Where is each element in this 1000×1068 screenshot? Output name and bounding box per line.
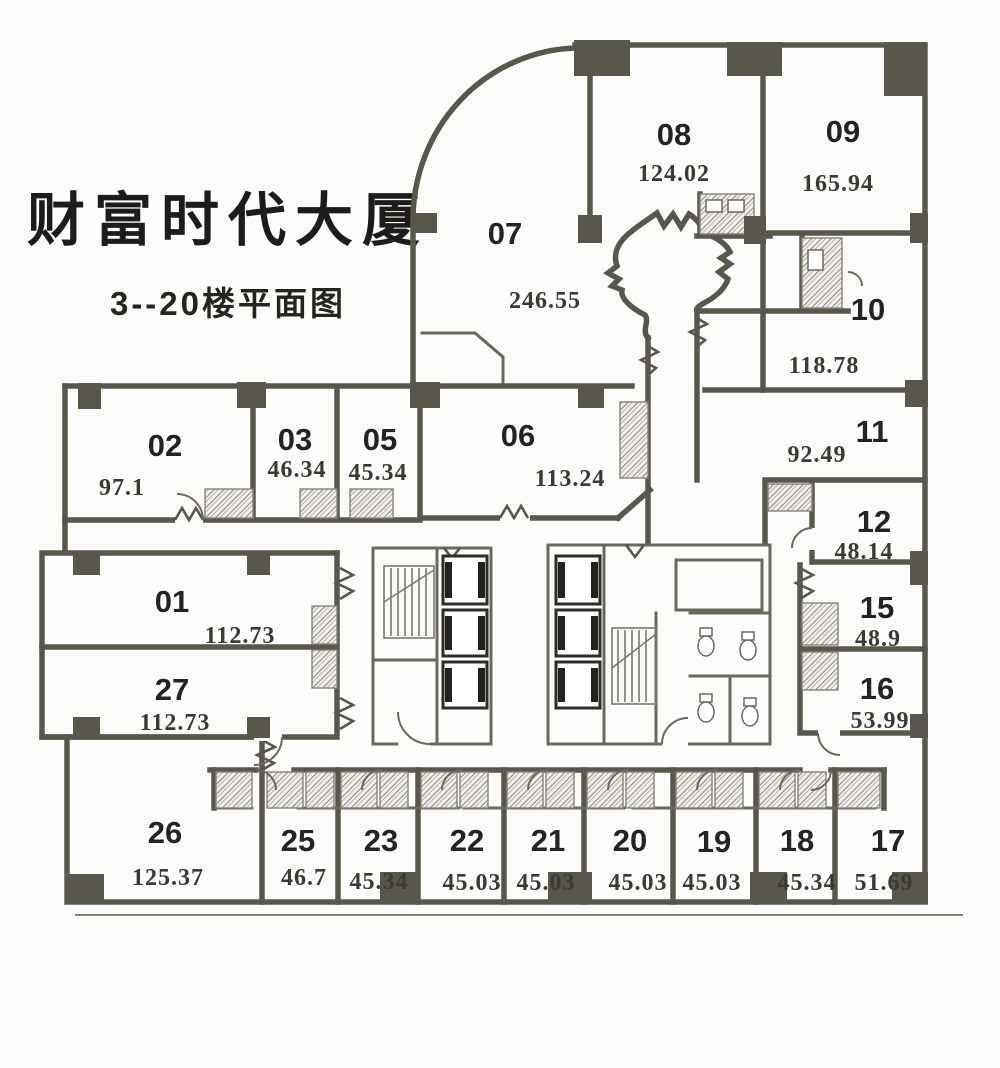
room-12-number: 12 bbox=[857, 504, 891, 539]
room-06-number: 06 bbox=[501, 418, 535, 453]
building-subtitle: 3--20楼平面图 bbox=[110, 285, 346, 322]
room-20-area: 45.03 bbox=[609, 870, 668, 896]
room-18-number: 18 bbox=[780, 823, 814, 858]
room-05-area: 45.34 bbox=[349, 460, 408, 486]
room-11-area: 92.49 bbox=[788, 442, 847, 468]
room-01-number: 01 bbox=[155, 584, 189, 619]
room-22-area: 45.03 bbox=[443, 870, 502, 896]
room-02-number: 02 bbox=[148, 428, 182, 463]
room-15-area: 48.9 bbox=[855, 626, 901, 652]
room-09-area: 165.94 bbox=[802, 171, 874, 197]
floor-plan-svg: 财富时代大厦 3--20楼平面图 bbox=[0, 0, 1000, 1068]
room-23-number: 23 bbox=[364, 823, 398, 858]
room-17-number: 17 bbox=[871, 823, 905, 858]
room-03-number: 03 bbox=[278, 422, 312, 457]
room-01-area: 112.73 bbox=[205, 623, 276, 649]
room-25-number: 25 bbox=[281, 823, 315, 858]
room-03-area: 46.34 bbox=[268, 457, 327, 483]
room-21-area: 45.03 bbox=[517, 870, 576, 896]
room-26-area: 125.37 bbox=[132, 865, 204, 891]
room-12-area: 48.14 bbox=[835, 539, 894, 565]
core-block-left bbox=[373, 548, 491, 744]
floor-plan-page: 财富时代大厦 3--20楼平面图 bbox=[0, 0, 1000, 1068]
room-18-area: 45.34 bbox=[778, 870, 837, 896]
room-23-area: 45.34 bbox=[350, 869, 409, 895]
room-27-area: 112.73 bbox=[140, 710, 211, 736]
room-11-number: 11 bbox=[856, 414, 889, 449]
room-15-number: 15 bbox=[860, 590, 894, 625]
room-16-number: 16 bbox=[860, 671, 894, 706]
room-10-number: 10 bbox=[851, 292, 885, 327]
room-08-number: 08 bbox=[657, 117, 691, 152]
doors bbox=[175, 272, 862, 790]
room-20-number: 20 bbox=[613, 823, 647, 858]
room-19-number: 19 bbox=[697, 824, 731, 859]
room-07-number: 07 bbox=[488, 216, 522, 251]
room-02-area: 97.1 bbox=[99, 475, 145, 501]
room-07-area: 246.55 bbox=[509, 288, 581, 314]
room-05-number: 05 bbox=[363, 422, 397, 457]
room-17-area: 51.69 bbox=[855, 870, 914, 896]
room-16-area: 53.99 bbox=[851, 708, 910, 734]
building-title: 财富时代大厦 bbox=[27, 188, 429, 253]
room-22-number: 22 bbox=[450, 823, 484, 858]
room-10-area: 118.78 bbox=[789, 353, 860, 379]
room-19-area: 45.03 bbox=[683, 870, 742, 896]
room-26-number: 26 bbox=[148, 815, 182, 850]
room-06-area: 113.24 bbox=[535, 466, 606, 492]
core-block-right bbox=[548, 545, 770, 744]
room-21-number: 21 bbox=[531, 823, 565, 858]
room-27-number: 27 bbox=[155, 672, 189, 707]
room-25-area: 46.7 bbox=[281, 865, 327, 891]
room-09-number: 09 bbox=[826, 114, 860, 149]
room-08-area: 124.02 bbox=[638, 161, 710, 187]
